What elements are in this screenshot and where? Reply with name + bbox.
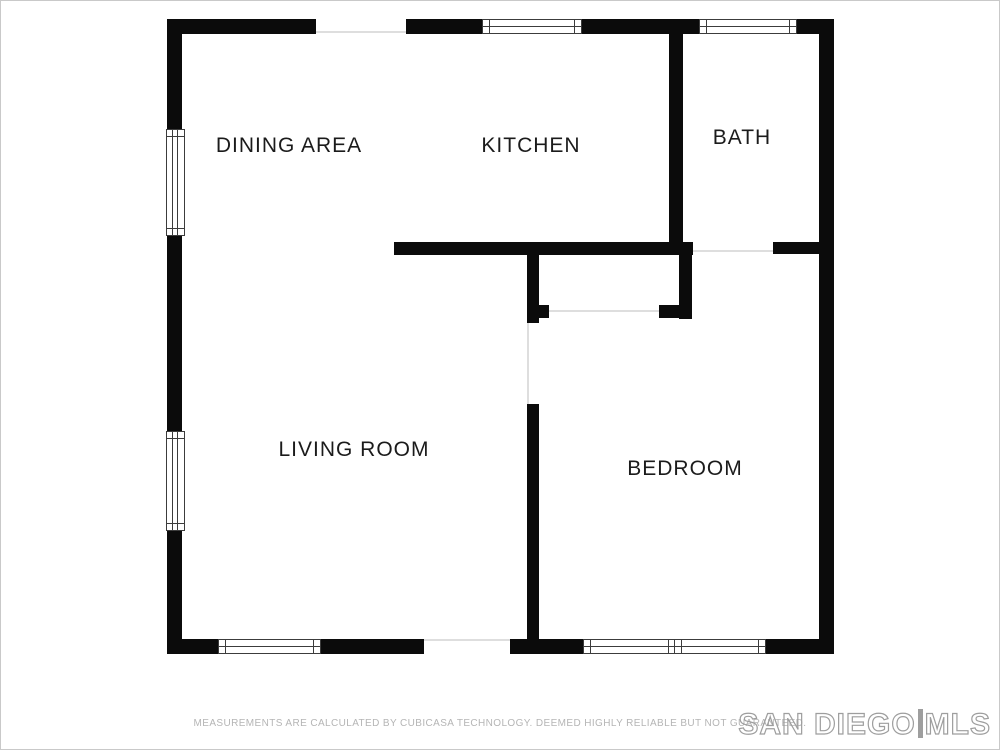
dining-window (166, 129, 185, 236)
room-label-bath: BATH (713, 126, 771, 150)
bedroom-window-right (674, 639, 766, 654)
wall-right (819, 19, 834, 654)
wall-kitchen-bath-divider (669, 34, 683, 242)
kitchen-window (482, 19, 582, 34)
room-label-living-room: LIVING ROOM (278, 438, 429, 462)
room-label-kitchen: KITCHEN (481, 134, 580, 158)
wall-top-mid (406, 19, 482, 34)
wall-kitchen-bottom (394, 242, 693, 255)
room-label-dining-area: DINING AREA (216, 134, 362, 158)
room-label-bedroom: BEDROOM (627, 457, 743, 481)
sandiego-mls-logo: SAN DIEGOMLS (738, 707, 991, 743)
wall-top-right-1 (582, 19, 699, 34)
opening-bath-door (693, 250, 773, 252)
opening-bottom-entry (424, 639, 510, 641)
opening-top (316, 31, 406, 33)
wall-bath-bottom-right (773, 242, 819, 254)
wall-hall-right-nub (659, 305, 681, 318)
bath-window (699, 19, 797, 34)
living-room-bottom-window (218, 639, 321, 654)
logo-part-mls: MLS (925, 708, 991, 741)
wall-living-bedroom-divider (527, 404, 539, 654)
logo-part-san-diego: SAN DIEGO (738, 708, 915, 741)
floorplan-page: DINING AREA KITCHEN BATH LIVING ROOM BED… (0, 0, 1000, 750)
living-room-left-window (166, 431, 185, 531)
wall-bottom-3 (510, 639, 583, 654)
opening-bedroom-door (527, 323, 529, 404)
wall-left-bottom (167, 531, 182, 654)
wall-hall-left-nub (537, 305, 549, 318)
wall-top-left (167, 19, 316, 34)
bedroom-window-left (583, 639, 676, 654)
wall-bottom-1 (167, 639, 218, 654)
wall-bottom-2 (321, 639, 424, 654)
logo-separator-bar (918, 709, 923, 738)
floorplan: DINING AREA KITCHEN BATH LIVING ROOM BED… (1, 1, 999, 749)
wall-bottom-4 (766, 639, 834, 654)
wall-left-mid (167, 236, 182, 431)
wall-left-top (167, 19, 182, 129)
opening-closet (549, 310, 659, 312)
